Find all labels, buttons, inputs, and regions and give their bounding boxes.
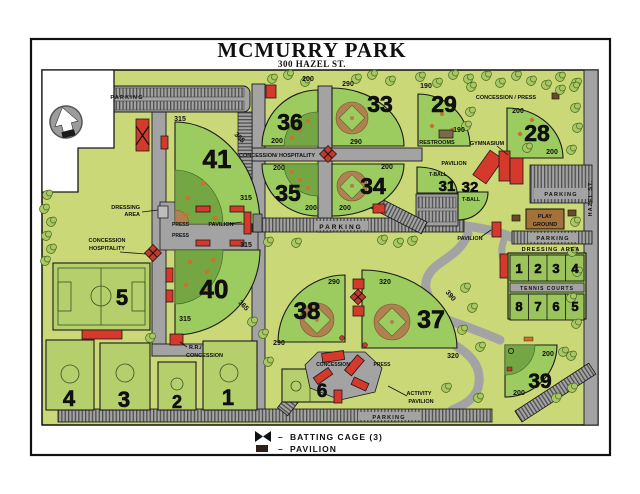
dressing-building xyxy=(158,206,168,218)
soccer-field-1-number: 1 xyxy=(222,385,234,410)
concession-hospitality-road-label: CONCESSION/ HOSPITALITY xyxy=(239,153,315,159)
field-38-marker-b: 290 xyxy=(273,340,285,347)
field-34-number: 34 xyxy=(360,173,386,199)
parking-label-right-top: PARKING xyxy=(544,192,577,198)
field-29-marker-b: 190 xyxy=(453,127,465,134)
field-35-marker-a: 200 xyxy=(273,165,285,172)
dressing-area-right-label: DRESSING AREA xyxy=(522,247,581,253)
field-34-marker-b: 200 xyxy=(339,205,351,212)
field-29-marker-a: 190 xyxy=(420,83,432,90)
playground-label-line1: PLAY xyxy=(538,214,552,220)
activity-pavilion-line1: ACTIVITY xyxy=(406,391,431,397)
parking-label-central: PARKING xyxy=(319,224,363,231)
field-41-marker-top: 315 xyxy=(174,116,186,123)
field-34-marker-a: 200 xyxy=(381,164,393,171)
tennis-building xyxy=(500,254,508,278)
field-40-number: 40 xyxy=(200,274,229,304)
field-31-number: 31 xyxy=(439,178,456,195)
soccer-field-5 xyxy=(53,263,150,330)
press-label-2: PRESS xyxy=(172,233,190,239)
field-32-number: 32 xyxy=(462,179,479,196)
gymnasium-label: GYMNASIUM xyxy=(470,141,505,147)
field-33-marker-a: 290 xyxy=(342,81,354,88)
restrooms-building xyxy=(439,130,453,138)
legend-dash-2: – xyxy=(278,444,284,454)
field-37-number: 37 xyxy=(417,306,445,334)
field-37-marker-a: 320 xyxy=(379,279,391,286)
field-36-marker-b: 200 xyxy=(271,138,283,145)
tennis-court-5: 5 xyxy=(571,299,578,314)
rr-concession-building xyxy=(170,334,183,345)
pavilion-label-top-central: PAVILION xyxy=(441,161,466,167)
soccer-field-5-number: 5 xyxy=(116,285,128,310)
field-39-number: 39 xyxy=(528,370,551,393)
park-map-page: MCMURRY PARK 300 HAZEL ST. xyxy=(0,0,640,494)
tennis-court-8: 8 xyxy=(515,299,522,314)
mcmurry-park-map: MCMURRY PARK 300 HAZEL ST. xyxy=(0,0,640,494)
tennis-court-3: 3 xyxy=(552,261,559,276)
field-35-number: 35 xyxy=(275,180,301,206)
pavilion-building-central xyxy=(492,222,501,237)
court-6-number: 6 xyxy=(317,381,328,402)
concession-press-label: CONCESSION / PRESS xyxy=(476,95,537,101)
tennis-court-1: 1 xyxy=(515,261,522,276)
park-address: 300 HAZEL ST. xyxy=(278,59,346,69)
soccer-field-3-number: 3 xyxy=(118,387,130,412)
tennis-court-6: 6 xyxy=(552,299,559,314)
field-29-number: 29 xyxy=(431,91,457,117)
batting-cage-building xyxy=(136,119,149,151)
field-37-marker-b: 320 xyxy=(447,353,459,360)
field-40-marker-bottom: 315 xyxy=(179,316,191,323)
concession-label-plaza: CONCESSION xyxy=(316,362,350,368)
dressing-area-left-line1: DRESSING xyxy=(111,205,140,211)
concession-hospitality-left-line1: CONCESSION xyxy=(89,238,126,244)
field-33-number: 33 xyxy=(367,91,393,117)
field-39-marker-a: 200 xyxy=(542,351,554,358)
soccer-field-4-number: 4 xyxy=(63,386,76,411)
legend-batting-cage-label: BATTING CAGE (3) xyxy=(290,432,383,442)
press-label-plaza: PRESS xyxy=(374,362,392,368)
rr-concession-line2: CONCESSION xyxy=(186,353,223,359)
bleacher-building xyxy=(82,330,122,339)
legend-dash-1: – xyxy=(278,432,284,442)
tennis-courts-label: TENNIS COURTS xyxy=(520,286,574,292)
field-36-marker-a: 200 xyxy=(302,76,314,83)
tennis-court-2: 2 xyxy=(534,261,541,276)
dressing-area-left-line2: AREA xyxy=(124,212,140,218)
field-41-number: 41 xyxy=(203,144,232,174)
building-top-center xyxy=(266,85,276,98)
field-41-marker-bottom: 315 xyxy=(240,195,252,202)
parking-label-top-left: PARKING xyxy=(110,95,143,101)
field-40-marker-top: 315 xyxy=(240,242,252,249)
field-28-number: 28 xyxy=(524,120,550,146)
field-35-marker-b: 200 xyxy=(305,205,317,212)
tball-label-32: T-BALL xyxy=(462,197,480,203)
field-28-marker-b: 200 xyxy=(546,149,558,156)
hazel-street-label: HAZEL ST. xyxy=(588,180,594,217)
tennis-court-7: 7 xyxy=(534,299,541,314)
rr-concession-line1: R.R./ xyxy=(189,345,202,351)
parking-label-right-mid: PARKING xyxy=(536,236,569,242)
parking-label-bottom: PARKING xyxy=(372,415,405,421)
field-36-number: 36 xyxy=(277,109,303,135)
field-28-marker-a: 200 xyxy=(512,108,524,115)
soccer-field-2-number: 2 xyxy=(172,392,182,412)
press-label-1: PRESS xyxy=(172,222,190,228)
tennis-court-4: 4 xyxy=(571,261,579,276)
field-39-marker-b: 200 xyxy=(513,390,525,397)
activity-pavilion-line2: PAVILION xyxy=(408,399,433,405)
playground-label-line2: GROUND xyxy=(533,222,557,228)
field-38-marker-a: 290 xyxy=(328,279,340,286)
restrooms-label: RESTROOMS xyxy=(419,140,455,146)
field-33-marker-b: 290 xyxy=(350,139,362,146)
pavilion-label-left: PAVILION xyxy=(208,222,233,228)
pavilion-icon xyxy=(256,445,268,452)
pavilion-label-bottom-central: PAVILION xyxy=(457,236,482,242)
field-38-number: 38 xyxy=(294,298,321,325)
legend-pavilion-label: PAVILION xyxy=(290,444,337,454)
concession-hospitality-left-line2: HOSPITALITY xyxy=(89,246,125,252)
